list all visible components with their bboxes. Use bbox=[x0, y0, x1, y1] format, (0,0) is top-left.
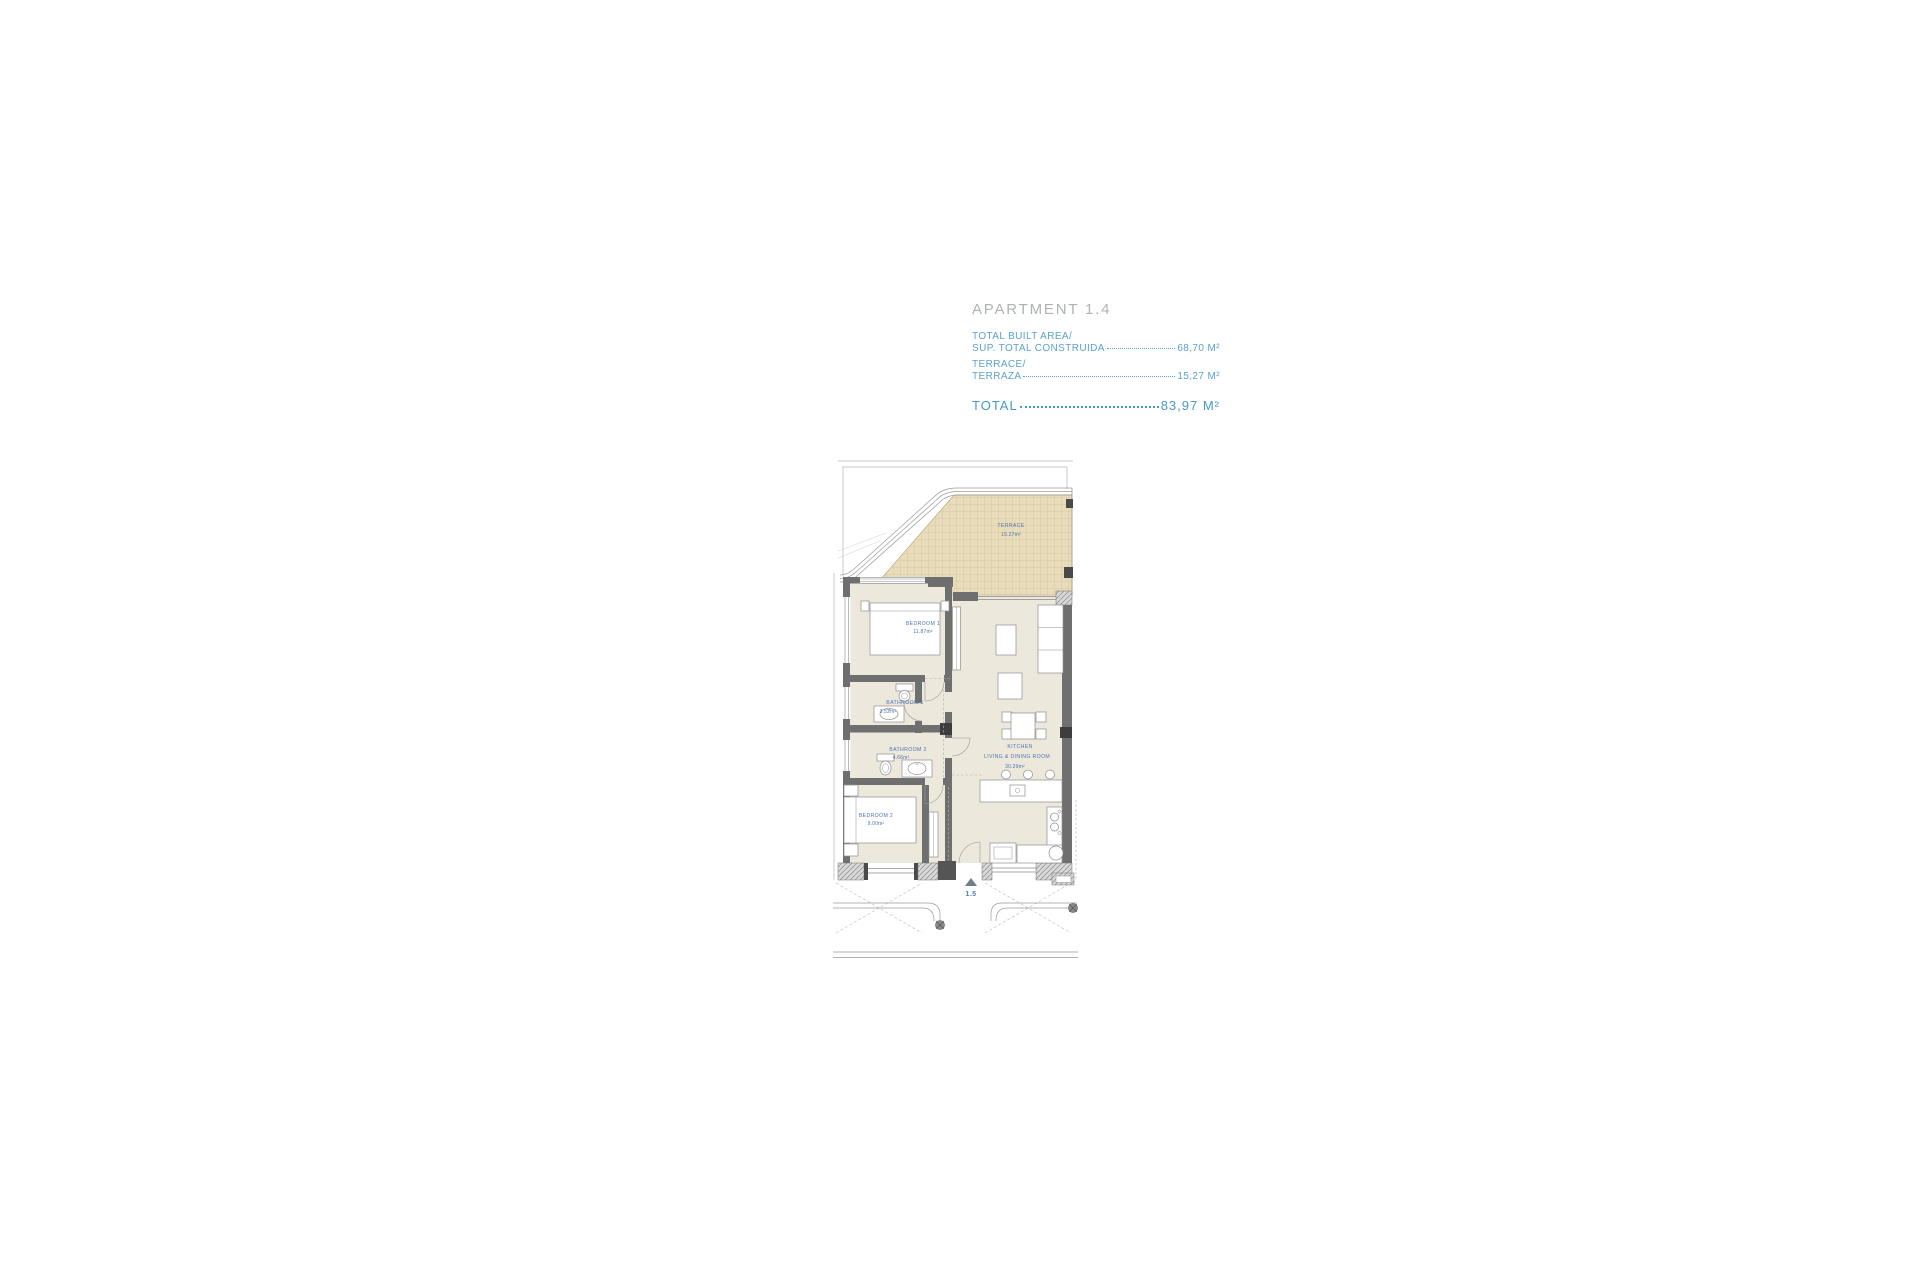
bedroom2-label: BEDROOM 2 bbox=[859, 813, 893, 819]
kitchen-label: KITCHEN bbox=[1007, 744, 1032, 750]
entry-marker-label: 1.5 bbox=[966, 891, 977, 898]
built-area-row: TOTAL BUILT AREA/ SUP. TOTAL CONSTRUIDA … bbox=[972, 331, 1220, 354]
terrace-area-label-en: TERRACE/ bbox=[972, 359, 1220, 371]
apartment-title: APARTMENT 1.4 bbox=[972, 301, 1220, 318]
bedroom1-top-window bbox=[860, 578, 925, 584]
total-row: TOTAL 83,97 M² bbox=[972, 398, 1220, 413]
terrace-area-row: TERRACE/ TERRAZA 15,27 M² bbox=[972, 359, 1220, 382]
railing-anchor bbox=[1064, 567, 1073, 578]
floor-plan: 1.5 TERRACE 15.27m² BEDROOM 1 11.87m² BA… bbox=[830, 455, 1080, 975]
terrace-area-value: 15,27 M² bbox=[1177, 371, 1220, 383]
bar-stool bbox=[1002, 770, 1011, 779]
bottom-section-lines bbox=[833, 952, 1078, 958]
bottom-wall-band bbox=[838, 861, 1074, 885]
dotted-leader bbox=[1020, 406, 1159, 408]
dotted-leader bbox=[1023, 376, 1175, 377]
patio-railings bbox=[833, 903, 1077, 921]
drain-marker bbox=[1069, 904, 1078, 913]
kitchen-island bbox=[980, 780, 1062, 802]
bed-1 bbox=[861, 601, 949, 655]
bedroom2-area: 9.00m² bbox=[868, 821, 885, 827]
bedroom1-label: BEDROOM 1 bbox=[906, 621, 940, 627]
built-area-label-es: SUP. TOTAL CONSTRUIDA bbox=[972, 343, 1105, 355]
built-area-label-en: TOTAL BUILT AREA/ bbox=[972, 331, 1220, 343]
bedroom1-area: 11.87m² bbox=[913, 629, 933, 635]
railing-anchor bbox=[1066, 499, 1073, 508]
terrace-area-label-es: TERRAZA bbox=[972, 371, 1021, 383]
lower-patios bbox=[833, 883, 1078, 933]
living-dining-label: LIVING & DINING ROOM bbox=[984, 754, 1050, 760]
drain-marker bbox=[936, 921, 945, 930]
bathroom2-area: 4.66m² bbox=[893, 755, 910, 761]
apartment-plan-sheet: APARTMENT 1.4 TOTAL BUILT AREA/ SUP. TOT… bbox=[0, 0, 1920, 1280]
bathroom2-window bbox=[843, 740, 851, 771]
sofa bbox=[1038, 605, 1063, 673]
bathroom1-area: 3.52m² bbox=[880, 709, 897, 715]
kitchen-peninsula bbox=[990, 843, 1016, 863]
dotted-leader bbox=[1107, 348, 1175, 349]
bedroom1-left-window bbox=[843, 597, 851, 663]
kitchen-area: 30.29m² bbox=[1005, 764, 1025, 770]
bar-stool bbox=[1024, 770, 1033, 779]
sink-bathroom2 bbox=[902, 760, 932, 777]
kitchen-counter-bottom bbox=[1017, 845, 1063, 863]
bathroom2-label: BATHROOM 2 bbox=[889, 747, 926, 753]
floor-plan-svg: 1.5 TERRACE 15.27m² BEDROOM 1 11.87m² BA… bbox=[830, 455, 1080, 975]
apartment-info-block: APARTMENT 1.4 TOTAL BUILT AREA/ SUP. TOT… bbox=[972, 301, 1220, 413]
bar-stool bbox=[1046, 770, 1055, 779]
bathroom1-label: BATHROOM 1 bbox=[886, 700, 923, 706]
built-area-value: 68,70 M² bbox=[1177, 343, 1220, 355]
total-value: 83,97 M² bbox=[1161, 398, 1220, 413]
terrace-label: TERRACE bbox=[997, 523, 1024, 529]
terrace-area: 15.27m² bbox=[1001, 532, 1021, 538]
total-label: TOTAL bbox=[972, 398, 1018, 413]
armchair bbox=[998, 673, 1022, 699]
entry-marker: 1.5 bbox=[965, 878, 977, 898]
bathroom1-window bbox=[843, 687, 851, 719]
coffee-table bbox=[996, 625, 1016, 655]
